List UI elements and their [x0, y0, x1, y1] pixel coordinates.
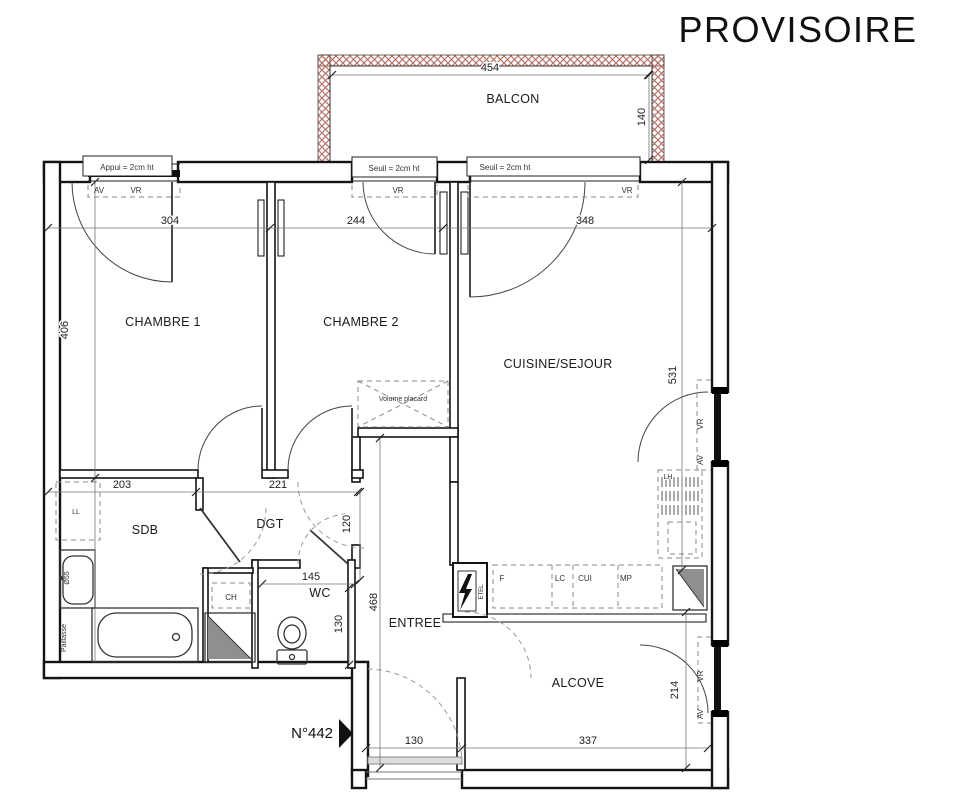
toilet: [277, 617, 307, 664]
dim-cuisine-width: 348: [576, 215, 594, 227]
dim-dgt-height: 120: [341, 515, 353, 533]
floor-plan: PROVISOIRE BALCON CHAMBRE 1 CHAMBRE 2 CU…: [0, 0, 956, 800]
label-appui: Appui = 2cm ht: [100, 163, 154, 172]
room-label-alcove: ALCOVE: [552, 676, 605, 690]
label-seuil-2: Seuil = 2cm ht: [480, 163, 532, 172]
window-roller-brackets: [88, 185, 711, 723]
room-label-chambre1: CHAMBRE 1: [125, 315, 201, 329]
label-kitchen-lc: LC: [555, 574, 565, 583]
dim-entree-height: 468: [368, 593, 380, 611]
dim-cuisine-height: 531: [667, 366, 679, 384]
label-volume-placard: Volume placard: [379, 396, 427, 403]
label-kitchen-mp: MP: [620, 574, 632, 583]
dim-chambre1-width: 304: [161, 215, 179, 227]
floor-plan-drawing: PROVISOIRE BALCON CHAMBRE 1 CHAMBRE 2 CU…: [0, 0, 956, 800]
bathtub: [92, 608, 198, 662]
label-kitchen-cui: CUI: [578, 574, 592, 583]
technical-shaft-sdb: [205, 613, 255, 662]
label-washbasin-diameter: Ø55: [64, 571, 71, 584]
volume-placard-box: [358, 381, 448, 427]
label-vr-right-window2: VR: [696, 670, 705, 681]
dim-chambre1-height: 406: [59, 321, 71, 339]
dim-alcove-width: 337: [579, 735, 597, 747]
room-label-balcon: BALCON: [486, 92, 539, 106]
dim-sdb-width: 203: [113, 479, 131, 491]
interior-walls: [60, 182, 706, 770]
dim-chambre2-width: 244: [347, 215, 365, 227]
label-lh: LH: [664, 474, 673, 481]
sill-label-boxes: [83, 156, 640, 177]
label-vr-window1: VR: [130, 186, 141, 195]
room-label-chambre2: CHAMBRE 2: [323, 315, 399, 329]
room-label-wc: WC: [309, 586, 330, 600]
label-vr-window3: VR: [621, 186, 632, 195]
room-label-sdb: SDB: [132, 523, 159, 537]
label-av-right-window2: AV: [696, 708, 705, 719]
page-title: PROVISOIRE: [678, 9, 917, 50]
room-label-entree: ENTREE: [389, 616, 442, 630]
label-vr-window2: VR: [392, 186, 403, 195]
dim-wc-width: 145: [302, 571, 320, 583]
dim-entrance-door: 130: [405, 735, 423, 747]
unit-number-marker: N°442: [291, 719, 353, 748]
label-elec-panel: ETEL: [479, 584, 485, 600]
window-right-alcove: [712, 640, 728, 717]
room-label-dgt: DGT: [256, 517, 283, 531]
dim-balcon-depth: 140: [636, 108, 648, 126]
label-seuil-1: Seuil = 2cm ht: [369, 164, 421, 173]
unit-number: N°442: [291, 725, 333, 742]
kitchen-appliance-boxes: [493, 565, 662, 608]
dim-dgt-width: 221: [269, 479, 287, 491]
dim-balcon-width: 454: [481, 62, 499, 74]
label-chauffe-eau: CH: [225, 593, 237, 602]
label-vr-right-window1: VR: [696, 418, 705, 429]
dim-wc-height: 130: [333, 615, 345, 633]
window-right-cuisine: [712, 387, 728, 467]
technical-shaft-kitchen: [673, 566, 707, 610]
label-lave-linge: LL: [72, 509, 80, 516]
label-paillasse: Paillasse: [61, 624, 68, 652]
label-kitchen-f: F: [500, 574, 505, 583]
label-av-right-window1: AV: [696, 454, 705, 465]
dim-alcove-height: 214: [669, 681, 681, 699]
radiator: [658, 470, 702, 558]
label-av-window1: AV: [94, 186, 105, 195]
room-label-cuisine-sejour: CUISINE/SEJOUR: [503, 357, 612, 371]
